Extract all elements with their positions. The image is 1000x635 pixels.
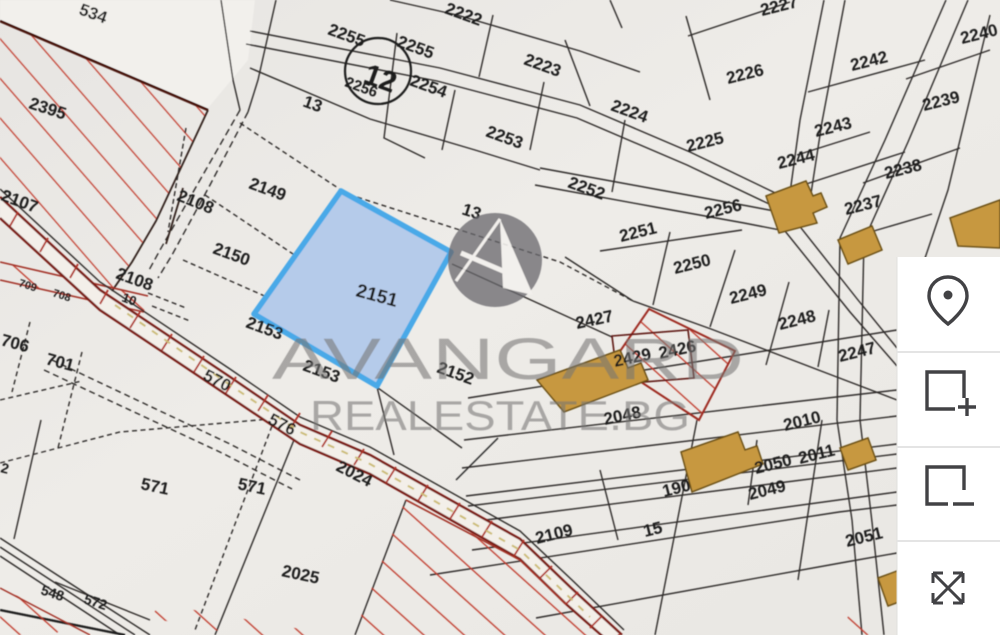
svg-text:AVANGARD: AVANGARD (272, 327, 744, 392)
svg-text:REALESTATE.BG: REALESTATE.BG (310, 392, 690, 439)
